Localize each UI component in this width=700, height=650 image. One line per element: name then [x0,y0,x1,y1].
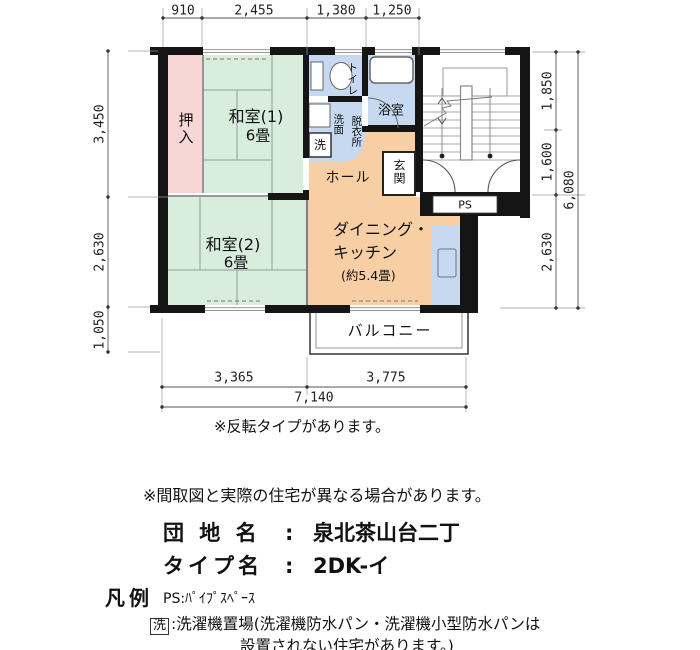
note-flip-type: ※反転タイプがあります。 [214,420,390,435]
room-label-toilet: トイレ [347,62,358,97]
dim-right-0: 1,850 [542,71,555,110]
stair-break-line [424,97,492,126]
legend-wash-line1: :洗濯機置場(洗濯機防水パン・洗濯機小型防水パンは [171,617,540,633]
washer-symbol: 洗 [150,618,169,635]
type-colon: : [285,556,293,577]
dim-top-1: 2,455 [234,5,273,18]
room-label-dk-1: ダイニング・ [333,222,429,238]
type-name-value: 2DK-イ [313,556,389,577]
vanity-icon [309,104,330,127]
dim-top-0: 910 [171,5,194,18]
dim-right-1: 1,600 [542,142,555,181]
dim-left-1: 2,630 [94,232,107,271]
dim-top-2: 1,380 [316,5,355,18]
dim-left-2: 1,050 [94,310,107,349]
type-name-label: タイプ名 [163,556,263,577]
room-label-washitsu1: 和室(1) [229,109,284,125]
note-disclaimer: ※間取図と実際の住宅が異なる場合があります。 [143,488,491,504]
stairs [423,68,520,192]
estate-colon: : [285,523,293,544]
dim-bottom-total: 7,140 [294,392,333,405]
room-size-dk: (約5.4畳) [341,270,396,283]
room-label-washitsu2: 和室(2) [206,237,261,253]
entry-door-arc-right [488,160,520,192]
room-size-washitsu2: 6畳 [224,256,249,271]
floorplan-page: 910 2,455 1,380 1,250 3,450 2,630 1,050 … [0,0,700,650]
dim-right-2: 2,630 [542,232,555,271]
room-label-hall: ホール [326,171,371,185]
estate-name-label: 団 地 名 [163,523,261,544]
dim-left-0: 3,450 [94,104,107,143]
room-label-bath: 浴室 [378,105,404,118]
room-label-wash: 洗 [314,139,326,151]
legend-wash-symbol-box: 洗 [150,616,169,635]
room-label-dk-2: キッチン [333,245,397,261]
legend-title: 凡例 [105,588,153,608]
room-size-washitsu1: 6畳 [246,129,271,144]
room-label-ps: PS [458,200,472,211]
room-label-oshiire: 押入 [178,112,193,146]
dim-right-total: 6,080 [564,170,577,209]
entry-door-arc-left [423,160,455,192]
room-label-balcony: バルコニー [348,324,433,339]
bathtub-icon [370,57,413,83]
estate-name-value: 泉北茶山台二丁 [313,523,460,544]
legend-ps-text: PS:ﾊﾟｲﾌﾟｽﾍﾟｰｽ [163,592,255,606]
dim-bottom-0: 3,365 [214,372,253,385]
room-label-senmen: 洗面 [333,114,344,135]
legend-wash-line2: 設置されない住宅があります。) [240,639,454,650]
dim-bottom-1: 3,775 [366,372,405,385]
room-label-datsui: 脱衣所 [351,115,362,147]
dim-top-3: 1,250 [372,5,411,18]
room-label-genkan: 玄関 [393,159,405,185]
